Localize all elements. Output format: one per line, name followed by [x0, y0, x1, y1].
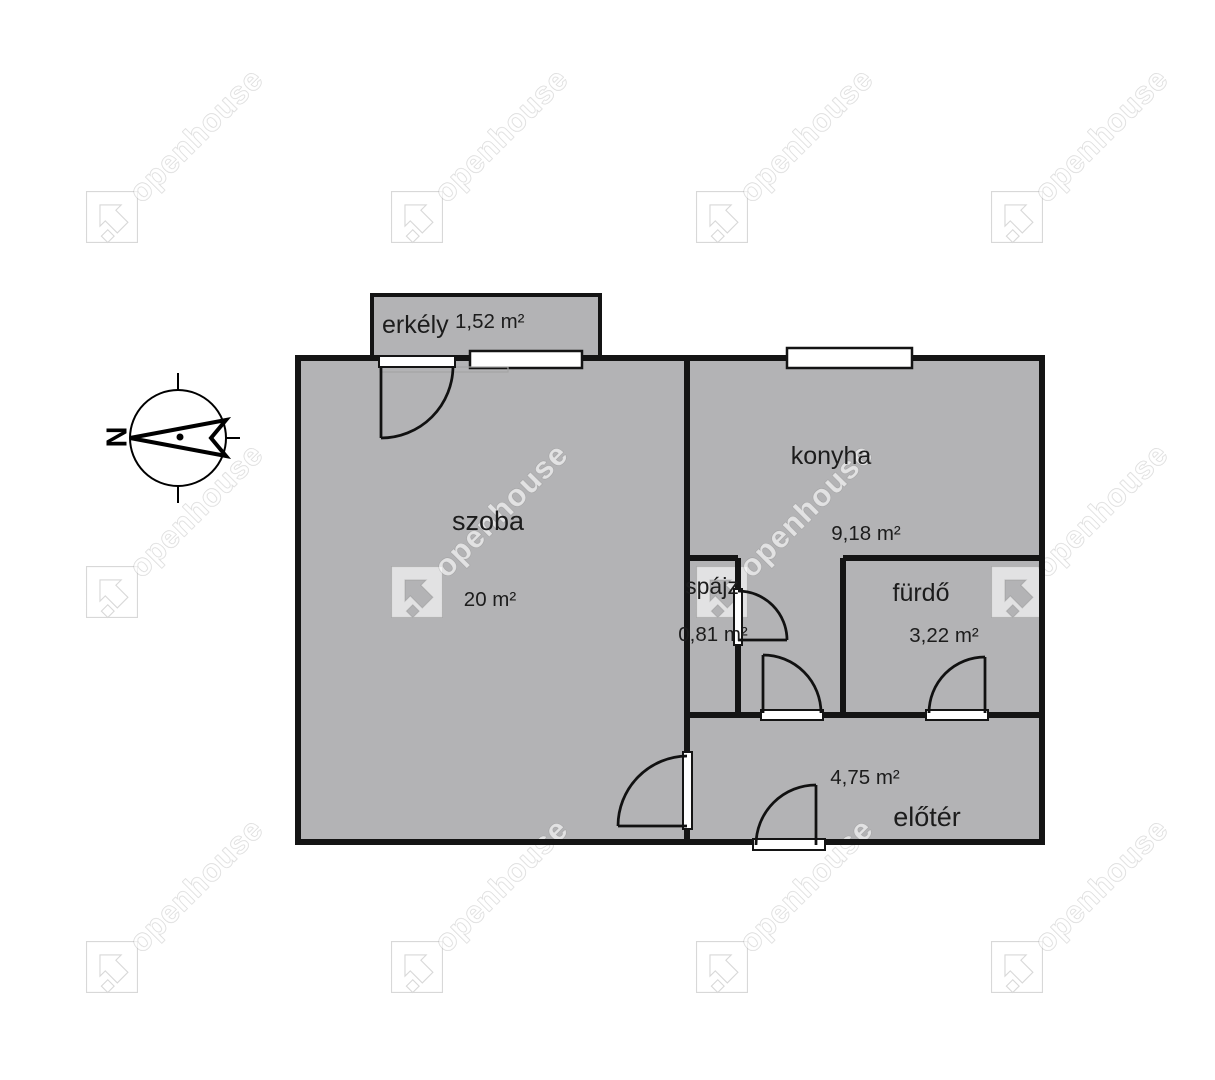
- window-konyha: [787, 348, 912, 368]
- door-panel-szoba: [683, 752, 692, 829]
- watermark: [366, 47, 587, 268]
- watermark: [61, 47, 282, 268]
- north-label: N: [100, 427, 132, 448]
- room-area-furdo: 3,22 m²: [909, 624, 979, 647]
- watermark: [966, 47, 1187, 268]
- room-label-furdo: fürdő: [893, 579, 950, 607]
- room-label-eloter: előtér: [893, 802, 961, 832]
- room-label-spajz: spájz: [685, 573, 739, 599]
- room-area-konyha: 9,18 m²: [831, 522, 901, 545]
- door-panel-balcony: [379, 356, 455, 367]
- room-area-eloter: 4,75 m²: [830, 766, 900, 789]
- door-threshold-furdo: [926, 710, 988, 720]
- watermark: [61, 797, 282, 1018]
- room-area-szoba: 20 m²: [464, 588, 517, 611]
- window-szoba: [470, 351, 582, 368]
- compass-center-dot: [177, 434, 184, 441]
- room-area-erkely: 1,52 m²: [455, 310, 525, 333]
- room-label-szoba: szoba: [452, 506, 525, 536]
- room-label-erkely: erkély: [382, 311, 449, 339]
- room-area-spajz: 0,81 m²: [678, 623, 748, 646]
- door-threshold-entry: [753, 839, 825, 850]
- floor-plan-drawing: openhouse: [0, 0, 1215, 1080]
- floor-plan-canvas: openhouse: [0, 0, 1215, 1080]
- watermark: [61, 422, 282, 643]
- room-label-konyha: konyha: [791, 442, 872, 470]
- watermark: [671, 47, 892, 268]
- door-threshold-konyha: [761, 710, 823, 720]
